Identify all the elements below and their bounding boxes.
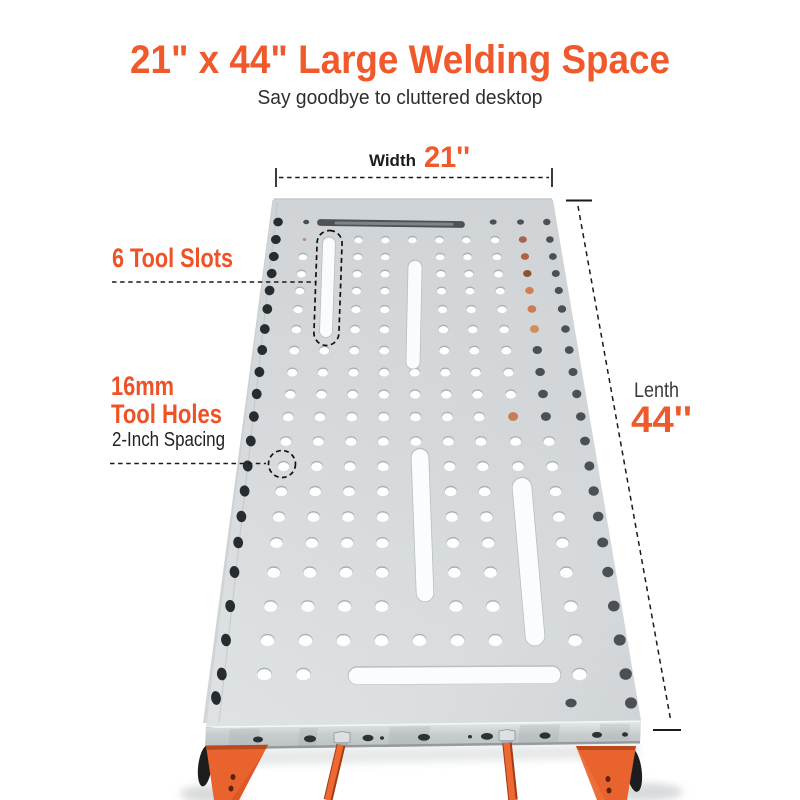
svg-text:16mm: 16mm <box>111 371 174 401</box>
svg-text:21'': 21'' <box>424 141 470 174</box>
svg-text:44'': 44'' <box>631 399 692 440</box>
svg-text:6 Tool Slots: 6 Tool Slots <box>112 243 233 273</box>
svg-text:2-Inch Spacing: 2-Inch Spacing <box>112 429 225 451</box>
svg-text:Tool Holes: Tool Holes <box>111 399 222 429</box>
svg-text:Width: Width <box>369 151 416 170</box>
svg-text:21" x 44" Large Welding Space: 21" x 44" Large Welding Space <box>130 38 670 82</box>
svg-text:Say goodbye to cluttered deskt: Say goodbye to cluttered desktop <box>258 87 543 109</box>
